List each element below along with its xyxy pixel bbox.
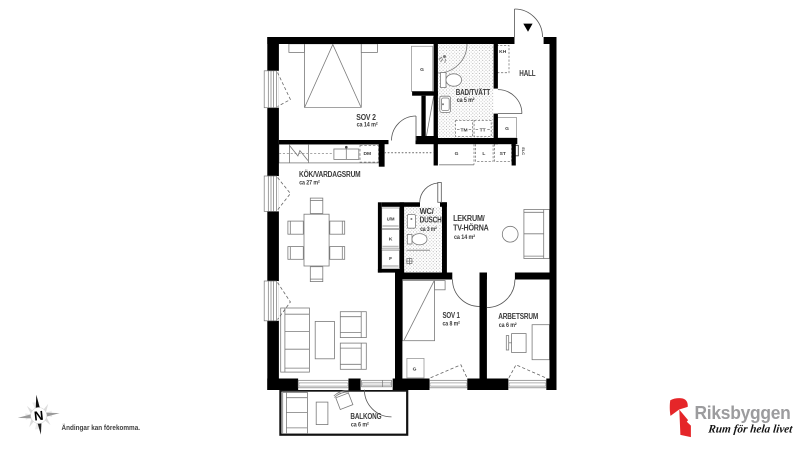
svg-text:TT: TT xyxy=(480,127,486,133)
svg-text:Riksbyggen: Riksbyggen xyxy=(695,402,791,423)
svg-text:G: G xyxy=(413,366,417,372)
svg-text:ca 27 m²: ca 27 m² xyxy=(299,180,320,187)
svg-text:ST: ST xyxy=(500,151,506,157)
svg-text:KÖK/VARDAGSRUM: KÖK/VARDAGSRUM xyxy=(299,170,361,179)
svg-text:ca 14 m²: ca 14 m² xyxy=(357,122,378,129)
svg-text:ca 5 m²: ca 5 m² xyxy=(457,97,475,104)
svg-text:G: G xyxy=(420,67,424,73)
svg-text:ca 8 m²: ca 8 m² xyxy=(443,321,460,328)
svg-text:BALKONG: BALKONG xyxy=(350,412,381,421)
svg-text:SOV 1: SOV 1 xyxy=(443,311,461,320)
svg-text:LEKRUM/: LEKRUM/ xyxy=(453,214,485,223)
svg-text:DUSCH: DUSCH xyxy=(420,216,442,225)
svg-text:F: F xyxy=(389,256,392,262)
svg-text:KH: KH xyxy=(499,49,507,55)
svg-text:TV-HÖRNA: TV-HÖRNA xyxy=(453,224,489,233)
svg-text:ELC: ELC xyxy=(521,147,525,155)
svg-text:G: G xyxy=(455,151,459,157)
svg-text:Rum för hela livet: Rum för hela livet xyxy=(707,424,794,436)
svg-text:K: K xyxy=(389,236,393,242)
svg-text:U/M: U/M xyxy=(387,216,395,221)
svg-text:HALL: HALL xyxy=(519,69,535,78)
svg-text:N: N xyxy=(33,408,44,424)
svg-text:ca 14 m²: ca 14 m² xyxy=(454,234,475,241)
svg-text:G: G xyxy=(505,126,509,132)
svg-text:ca 3 m²: ca 3 m² xyxy=(420,226,437,233)
svg-text:DM: DM xyxy=(363,151,371,157)
svg-text:ca 6 m²: ca 6 m² xyxy=(499,322,517,329)
svg-text:ARBETSRUM: ARBETSRUM xyxy=(498,312,538,321)
svg-text:TM: TM xyxy=(460,127,467,133)
svg-text:Ändingar kan förekomma.: Ändingar kan förekomma. xyxy=(62,423,141,432)
svg-text:SOV 2: SOV 2 xyxy=(356,113,376,122)
svg-text:L: L xyxy=(482,151,485,157)
svg-text:ca 6 m²: ca 6 m² xyxy=(351,422,369,429)
svg-text:BAD/TVÄTT: BAD/TVÄTT xyxy=(456,88,490,97)
